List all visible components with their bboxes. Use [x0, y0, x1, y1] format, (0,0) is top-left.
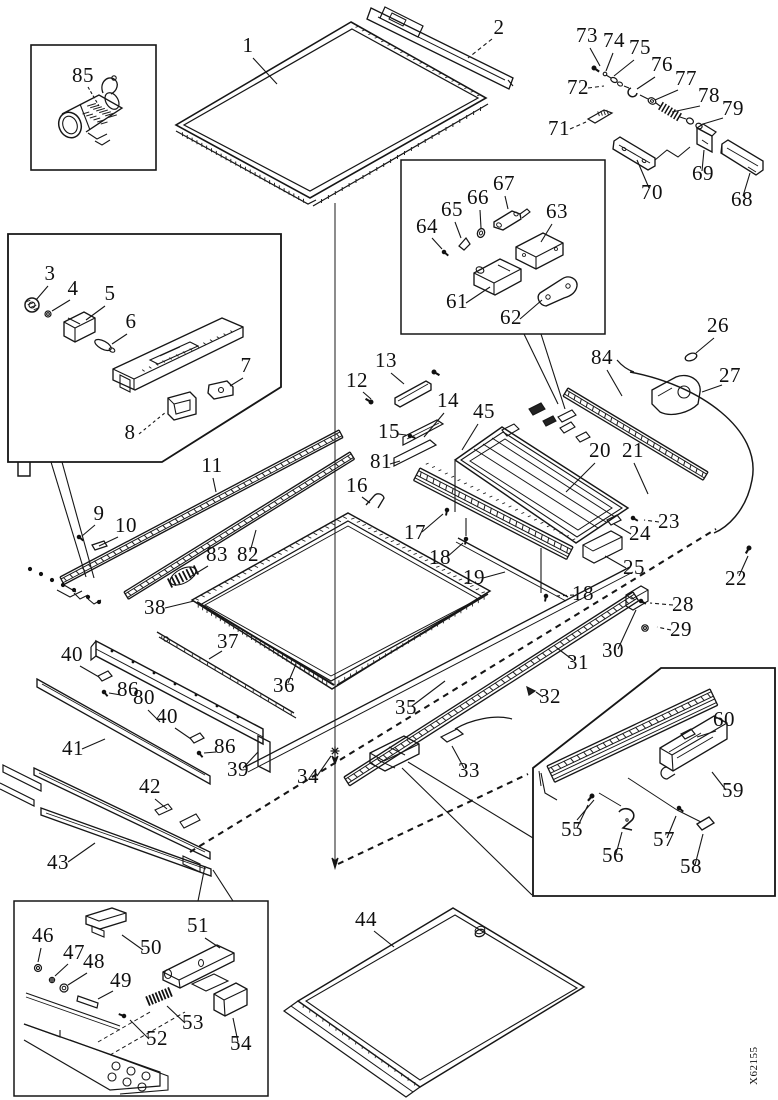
svg-text:85: 85 [72, 63, 94, 87]
svg-text:38: 38 [144, 595, 166, 619]
svg-text:78: 78 [698, 83, 720, 107]
svg-text:62: 62 [500, 305, 522, 329]
svg-text:7: 7 [241, 353, 252, 377]
svg-text:49: 49 [110, 968, 132, 992]
svg-text:28: 28 [672, 592, 694, 616]
svg-text:71: 71 [548, 116, 570, 140]
svg-text:64: 64 [416, 214, 438, 238]
svg-text:13: 13 [375, 348, 397, 372]
svg-text:30: 30 [602, 638, 624, 662]
svg-text:55: 55 [561, 817, 583, 841]
svg-text:56: 56 [602, 843, 624, 867]
svg-text:31: 31 [567, 650, 589, 674]
svg-text:22: 22 [725, 566, 747, 590]
svg-text:10: 10 [115, 513, 137, 537]
svg-text:33: 33 [458, 758, 480, 782]
svg-text:1: 1 [243, 33, 254, 57]
svg-text:86: 86 [214, 734, 236, 758]
svg-text:67: 67 [493, 171, 515, 195]
svg-text:76: 76 [651, 52, 673, 76]
svg-text:50: 50 [140, 935, 162, 959]
svg-text:53: 53 [182, 1010, 204, 1034]
svg-text:3: 3 [45, 261, 56, 285]
svg-text:60: 60 [713, 707, 735, 731]
svg-text:16: 16 [346, 473, 368, 497]
svg-text:11: 11 [201, 453, 222, 477]
svg-text:4: 4 [68, 276, 79, 300]
svg-text:73: 73 [576, 23, 598, 47]
svg-text:42: 42 [139, 774, 161, 798]
svg-text:80: 80 [133, 685, 155, 709]
svg-text:66: 66 [467, 185, 489, 209]
svg-text:5: 5 [105, 281, 116, 305]
svg-text:6: 6 [126, 309, 137, 333]
svg-text:36: 36 [273, 673, 295, 697]
svg-text:26: 26 [707, 313, 729, 337]
svg-text:40: 40 [61, 642, 83, 666]
svg-text:X62155: X62155 [748, 1047, 760, 1085]
svg-text:82: 82 [237, 542, 259, 566]
svg-text:39: 39 [227, 757, 249, 781]
svg-text:70: 70 [641, 180, 663, 204]
svg-text:57: 57 [653, 827, 675, 851]
svg-text:9: 9 [94, 501, 105, 525]
svg-text:23: 23 [658, 509, 680, 533]
svg-text:8: 8 [125, 420, 136, 444]
svg-text:43: 43 [47, 850, 69, 874]
svg-text:65: 65 [441, 197, 463, 221]
svg-text:48: 48 [83, 949, 105, 973]
svg-text:2: 2 [494, 15, 505, 39]
svg-text:14: 14 [437, 388, 459, 412]
svg-text:52: 52 [146, 1026, 168, 1050]
svg-text:44: 44 [355, 907, 377, 931]
svg-text:46: 46 [32, 923, 54, 947]
svg-text:68: 68 [731, 187, 753, 211]
svg-text:83: 83 [206, 542, 228, 566]
svg-text:59: 59 [722, 778, 744, 802]
svg-text:84: 84 [591, 345, 613, 369]
svg-text:37: 37 [217, 629, 239, 653]
svg-text:63: 63 [546, 199, 568, 223]
svg-text:74: 74 [603, 28, 625, 52]
svg-text:58: 58 [680, 854, 702, 878]
svg-text:34: 34 [297, 764, 319, 788]
svg-text:47: 47 [63, 940, 85, 964]
svg-text:45: 45 [473, 399, 495, 423]
svg-text:40: 40 [156, 704, 178, 728]
svg-text:12: 12 [346, 368, 368, 392]
svg-text:81: 81 [370, 449, 392, 473]
svg-text:61: 61 [446, 289, 468, 313]
svg-text:18: 18 [572, 581, 594, 605]
svg-text:19: 19 [463, 565, 485, 589]
svg-text:24: 24 [629, 521, 651, 545]
svg-text:20: 20 [589, 438, 611, 462]
svg-text:72: 72 [567, 75, 589, 99]
svg-text:51: 51 [187, 913, 209, 937]
svg-text:35: 35 [395, 695, 417, 719]
svg-text:27: 27 [719, 363, 741, 387]
svg-text:54: 54 [230, 1031, 252, 1055]
svg-text:77: 77 [675, 66, 697, 90]
svg-text:79: 79 [722, 96, 744, 120]
svg-text:21: 21 [622, 438, 644, 462]
svg-text:41: 41 [62, 736, 84, 760]
svg-text:15: 15 [378, 419, 400, 443]
svg-text:29: 29 [670, 617, 692, 641]
svg-text:75: 75 [629, 35, 651, 59]
